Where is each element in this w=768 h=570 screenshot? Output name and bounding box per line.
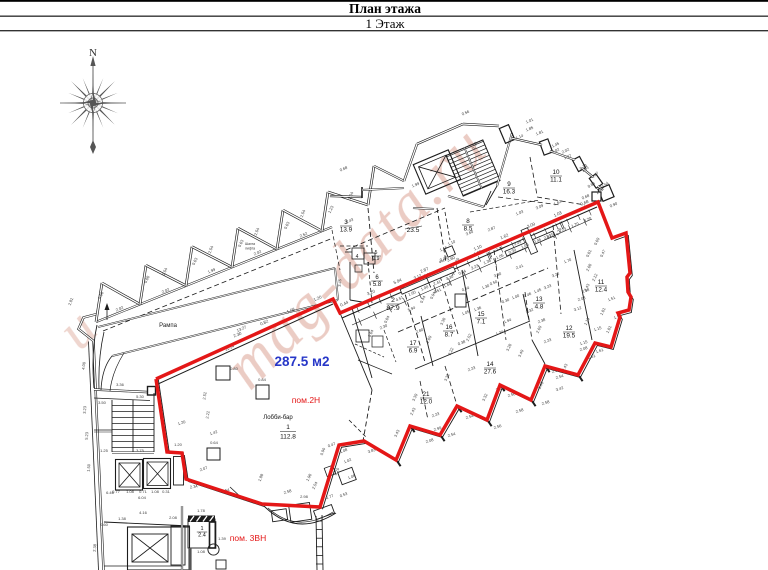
- svg-text:3.36: 3.36: [116, 382, 125, 387]
- svg-text:1: 1: [286, 424, 290, 431]
- svg-text:Лобби-бар: Лобби-бар: [263, 415, 293, 421]
- svg-text:3: 3: [344, 219, 348, 226]
- svg-text:2.08: 2.08: [169, 515, 178, 520]
- svg-text:пом.2Н: пом.2Н: [292, 395, 320, 405]
- svg-text:1 Этаж: 1 Этаж: [366, 16, 406, 31]
- svg-text:1.78: 1.78: [197, 508, 206, 513]
- svg-text:3.50: 3.50: [98, 400, 107, 405]
- svg-text:16.3: 16.3: [503, 189, 516, 196]
- svg-text:1.39: 1.39: [218, 536, 227, 541]
- svg-text:4.8: 4.8: [535, 304, 544, 311]
- svg-text:4: 4: [356, 254, 359, 260]
- svg-text:15: 15: [477, 311, 485, 318]
- svg-text:5: 5: [375, 250, 378, 256]
- svg-text:5.30: 5.30: [136, 394, 145, 399]
- svg-text:3.23: 3.23: [82, 405, 88, 414]
- svg-text:1.38: 1.38: [118, 516, 127, 521]
- svg-text:1.25: 1.25: [100, 448, 109, 453]
- svg-text:1.9: 1.9: [373, 256, 380, 262]
- svg-text:2.38: 2.38: [92, 543, 98, 552]
- svg-text:План этажа: План этажа: [349, 1, 421, 16]
- svg-text:8.7: 8.7: [445, 332, 454, 339]
- svg-text:1.50: 1.50: [86, 463, 92, 472]
- svg-text:12.4: 12.4: [595, 287, 608, 294]
- svg-text:0.60: 0.60: [100, 522, 109, 527]
- svg-text:лифта: лифта: [245, 247, 255, 251]
- svg-text:87.9: 87.9: [386, 305, 399, 312]
- svg-text:7: 7: [367, 262, 370, 268]
- svg-text:0.77: 0.77: [112, 489, 121, 494]
- svg-text:1.08: 1.08: [126, 489, 135, 494]
- svg-text:0.84: 0.84: [258, 377, 267, 382]
- svg-text:0.31: 0.31: [162, 489, 171, 494]
- svg-text:3.75: 3.75: [136, 448, 145, 453]
- svg-text:6.04: 6.04: [138, 495, 147, 500]
- svg-text:1.08: 1.08: [197, 549, 206, 554]
- svg-text:112.8: 112.8: [280, 434, 296, 441]
- svg-text:2.4: 2.4: [198, 533, 206, 539]
- svg-text:Шахта: Шахта: [245, 242, 255, 246]
- svg-text:12: 12: [565, 325, 573, 332]
- svg-text:13: 13: [535, 296, 543, 303]
- svg-text:3.45: 3.45: [337, 278, 343, 287]
- svg-text:5.8: 5.8: [373, 282, 382, 288]
- svg-text:8: 8: [466, 218, 470, 225]
- svg-text:8.5: 8.5: [464, 226, 473, 233]
- svg-text:27.6: 27.6: [484, 369, 497, 376]
- svg-text:11.1: 11.1: [550, 177, 562, 184]
- svg-text:0.64: 0.64: [210, 440, 219, 445]
- svg-text:287.5 м2: 287.5 м2: [274, 354, 329, 369]
- svg-text:19.5: 19.5: [563, 333, 576, 340]
- svg-text:Рампа: Рампа: [159, 323, 178, 329]
- svg-text:23.5: 23.5: [407, 227, 420, 234]
- svg-text:пом. 3ВН: пом. 3ВН: [230, 533, 266, 543]
- svg-text:13.9: 13.9: [340, 227, 353, 234]
- svg-text:N: N: [89, 47, 97, 59]
- svg-text:7.1: 7.1: [477, 319, 486, 326]
- svg-text:1.08: 1.08: [151, 489, 160, 494]
- svg-text:11: 11: [598, 279, 605, 286]
- svg-text:0.80: 0.80: [230, 366, 239, 371]
- svg-text:2: 2: [391, 297, 395, 304]
- svg-text:12.0: 12.0: [420, 399, 433, 406]
- svg-text:1: 1: [200, 526, 203, 532]
- svg-text:14: 14: [486, 361, 494, 368]
- svg-text:9: 9: [507, 181, 511, 188]
- svg-text:0.71: 0.71: [139, 489, 148, 494]
- svg-text:21: 21: [422, 391, 430, 398]
- svg-text:17: 17: [409, 340, 417, 347]
- svg-text:6.9: 6.9: [409, 348, 418, 355]
- svg-text:16: 16: [445, 324, 453, 331]
- svg-text:10: 10: [552, 169, 560, 176]
- svg-text:4.16: 4.16: [139, 510, 148, 515]
- svg-text:1.20: 1.20: [174, 442, 183, 447]
- svg-text:2.98: 2.98: [300, 494, 309, 499]
- svg-text:5.23: 5.23: [84, 431, 90, 440]
